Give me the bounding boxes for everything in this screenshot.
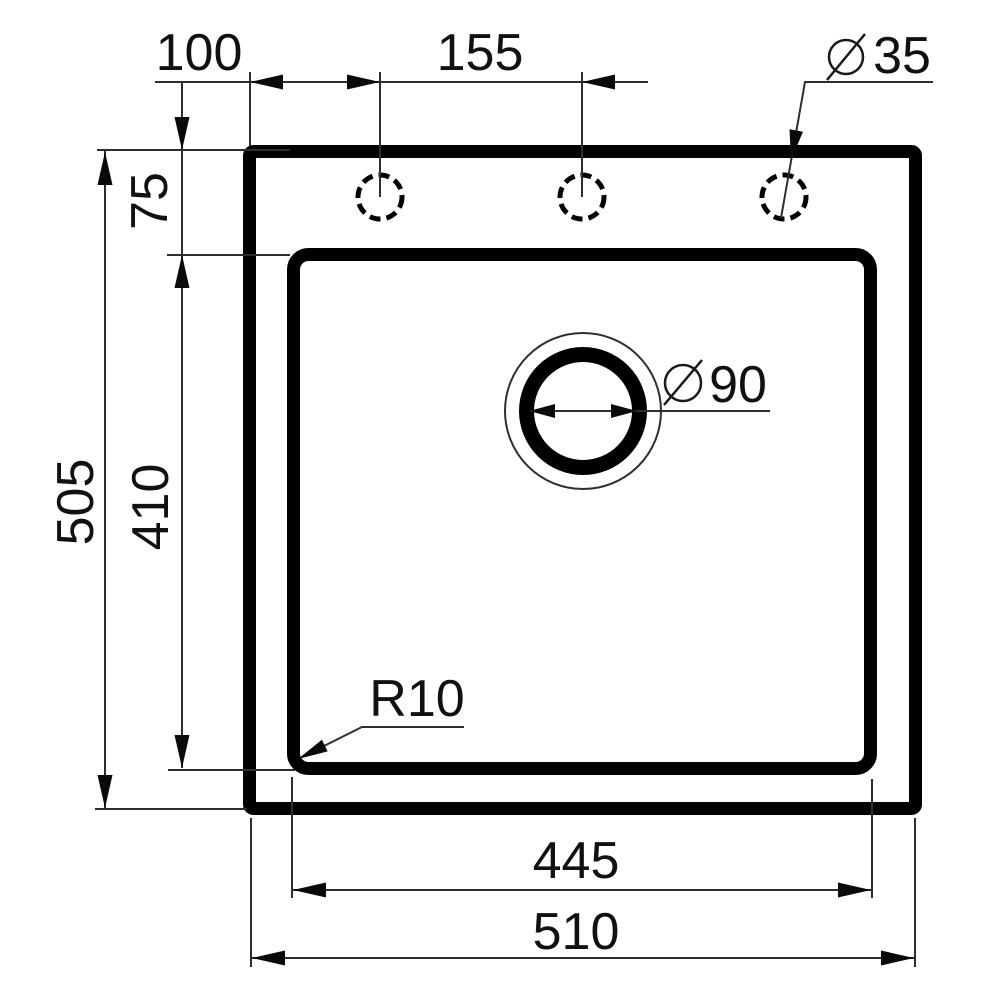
arrowhead-left-icon (252, 951, 285, 966)
dim-155-label: 155 (437, 24, 524, 82)
arrowhead-down-icon (98, 775, 113, 808)
dim-r10-label: R10 (369, 670, 464, 728)
arrowhead-up-icon (98, 152, 113, 185)
arrowhead-right-icon (347, 75, 380, 90)
sink-dimension-drawing: 100 155 35 505 75 410 (0, 0, 1000, 1000)
arrowhead-down-icon (175, 117, 190, 150)
dim-505-label: 505 (47, 459, 105, 546)
dim-410-label: 410 (122, 464, 180, 551)
arrowhead-left-icon (250, 75, 283, 90)
arrowhead-left-icon (582, 75, 615, 90)
arrowhead-down-icon (175, 735, 190, 768)
arrowhead-right-icon (881, 951, 914, 966)
dim-35-label: 35 (873, 27, 931, 85)
dim-90-label: 90 (709, 356, 767, 414)
dim-100-label: 100 (156, 24, 243, 82)
dim-445-label: 445 (533, 832, 620, 890)
arrowhead-left-icon (293, 883, 326, 898)
drawing-canvas: 100 155 35 505 75 410 (0, 0, 1000, 1000)
arrowhead-right-icon (838, 883, 871, 898)
arrowhead-up-icon (175, 255, 190, 288)
dim-75-label: 75 (121, 172, 179, 230)
dim-510-label: 510 (533, 903, 620, 961)
